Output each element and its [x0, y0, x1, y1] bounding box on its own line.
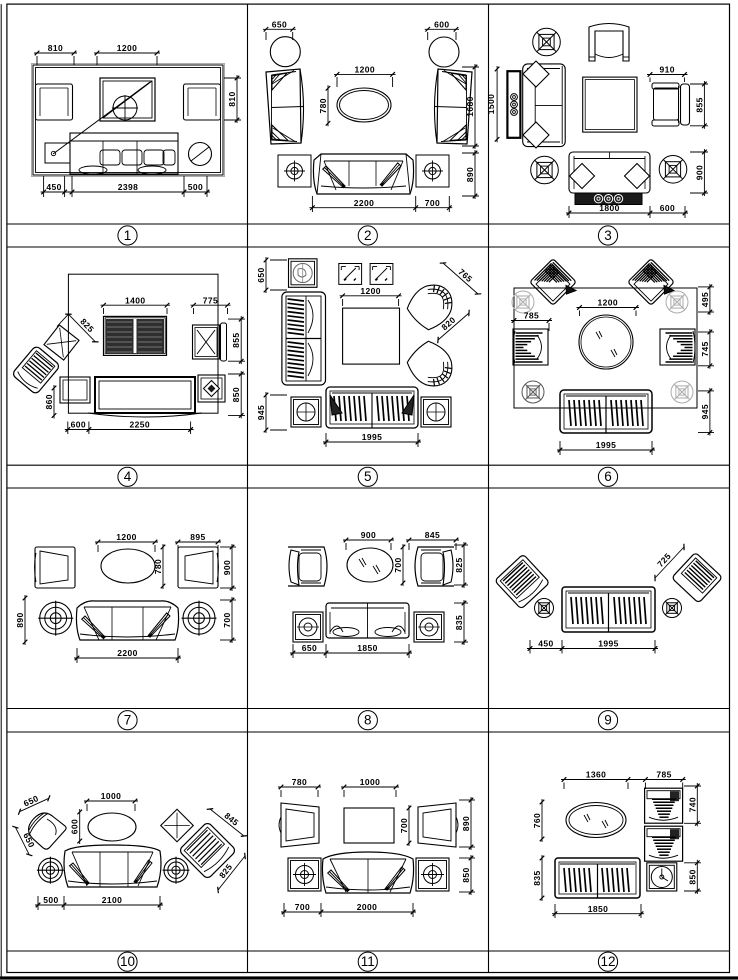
- svg-text:2398: 2398: [118, 182, 139, 192]
- svg-text:2250: 2250: [130, 420, 151, 430]
- svg-text:760: 760: [532, 813, 542, 828]
- svg-text:740: 740: [687, 797, 697, 812]
- svg-text:1000: 1000: [360, 777, 381, 787]
- svg-text:4: 4: [124, 469, 132, 484]
- svg-text:450: 450: [538, 639, 553, 649]
- svg-text:855: 855: [694, 97, 704, 112]
- svg-text:780: 780: [292, 777, 307, 787]
- svg-text:1200: 1200: [117, 43, 138, 53]
- svg-text:600: 600: [660, 203, 675, 213]
- svg-text:700: 700: [425, 198, 440, 208]
- svg-text:910: 910: [660, 65, 675, 75]
- svg-text:810: 810: [227, 91, 237, 106]
- svg-text:945: 945: [256, 405, 266, 420]
- svg-text:1: 1: [124, 228, 132, 243]
- svg-text:500: 500: [43, 895, 58, 905]
- svg-text:745: 745: [700, 341, 710, 356]
- svg-text:1800: 1800: [599, 203, 620, 213]
- svg-text:2200: 2200: [354, 198, 375, 208]
- svg-text:600: 600: [70, 819, 80, 834]
- svg-text:845: 845: [425, 530, 440, 540]
- svg-text:1000: 1000: [101, 791, 122, 801]
- svg-text:785: 785: [656, 770, 671, 780]
- svg-text:780: 780: [318, 98, 328, 113]
- svg-text:650: 650: [256, 267, 266, 282]
- svg-text:855: 855: [231, 333, 241, 348]
- svg-text:900: 900: [222, 560, 232, 575]
- svg-text:1200: 1200: [355, 65, 376, 75]
- svg-text:860: 860: [44, 394, 54, 409]
- svg-text:1200: 1200: [598, 298, 619, 308]
- svg-text:1995: 1995: [596, 440, 617, 450]
- svg-text:850: 850: [461, 867, 471, 882]
- svg-text:5: 5: [364, 469, 372, 484]
- svg-text:945: 945: [700, 404, 710, 419]
- svg-text:825: 825: [454, 557, 464, 572]
- svg-text:700: 700: [399, 818, 409, 833]
- svg-text:2100: 2100: [102, 895, 123, 905]
- svg-text:775: 775: [203, 295, 218, 305]
- svg-text:1400: 1400: [125, 295, 146, 305]
- svg-text:1500: 1500: [486, 94, 496, 115]
- svg-text:9: 9: [604, 713, 612, 728]
- svg-text:890: 890: [461, 816, 471, 831]
- svg-text:2: 2: [364, 228, 372, 243]
- svg-text:900: 900: [361, 530, 376, 540]
- svg-text:1850: 1850: [588, 904, 609, 914]
- svg-text:10: 10: [120, 954, 135, 969]
- svg-text:650: 650: [272, 20, 287, 30]
- svg-text:785: 785: [524, 311, 539, 321]
- svg-text:850: 850: [231, 387, 241, 402]
- svg-text:500: 500: [188, 182, 203, 192]
- svg-text:6: 6: [604, 469, 612, 484]
- svg-text:890: 890: [15, 612, 25, 627]
- svg-text:780: 780: [153, 559, 163, 574]
- svg-text:700: 700: [393, 557, 403, 572]
- svg-text:835: 835: [454, 615, 464, 630]
- svg-text:700: 700: [295, 902, 310, 912]
- svg-text:3: 3: [604, 228, 612, 243]
- svg-text:7: 7: [124, 713, 132, 728]
- svg-text:1360: 1360: [586, 770, 607, 780]
- svg-text:835: 835: [532, 870, 542, 885]
- svg-text:1850: 1850: [357, 643, 378, 653]
- svg-text:700: 700: [222, 612, 232, 627]
- svg-text:1995: 1995: [362, 432, 383, 442]
- svg-text:890: 890: [465, 167, 475, 182]
- svg-text:8: 8: [364, 713, 372, 728]
- svg-text:495: 495: [700, 292, 710, 307]
- svg-text:600: 600: [434, 20, 449, 30]
- svg-text:1680: 1680: [465, 96, 475, 117]
- svg-text:1200: 1200: [360, 286, 381, 296]
- svg-text:1995: 1995: [598, 639, 619, 649]
- svg-text:12: 12: [600, 954, 615, 969]
- svg-text:2200: 2200: [117, 648, 138, 658]
- svg-text:600: 600: [71, 420, 86, 430]
- svg-text:650: 650: [302, 643, 317, 653]
- svg-text:895: 895: [190, 532, 205, 542]
- svg-text:850: 850: [687, 869, 697, 884]
- svg-text:2000: 2000: [357, 902, 378, 912]
- svg-text:900: 900: [694, 165, 704, 180]
- svg-text:11: 11: [361, 954, 375, 969]
- svg-text:810: 810: [48, 43, 63, 53]
- svg-text:450: 450: [46, 182, 61, 192]
- svg-text:1200: 1200: [116, 532, 137, 542]
